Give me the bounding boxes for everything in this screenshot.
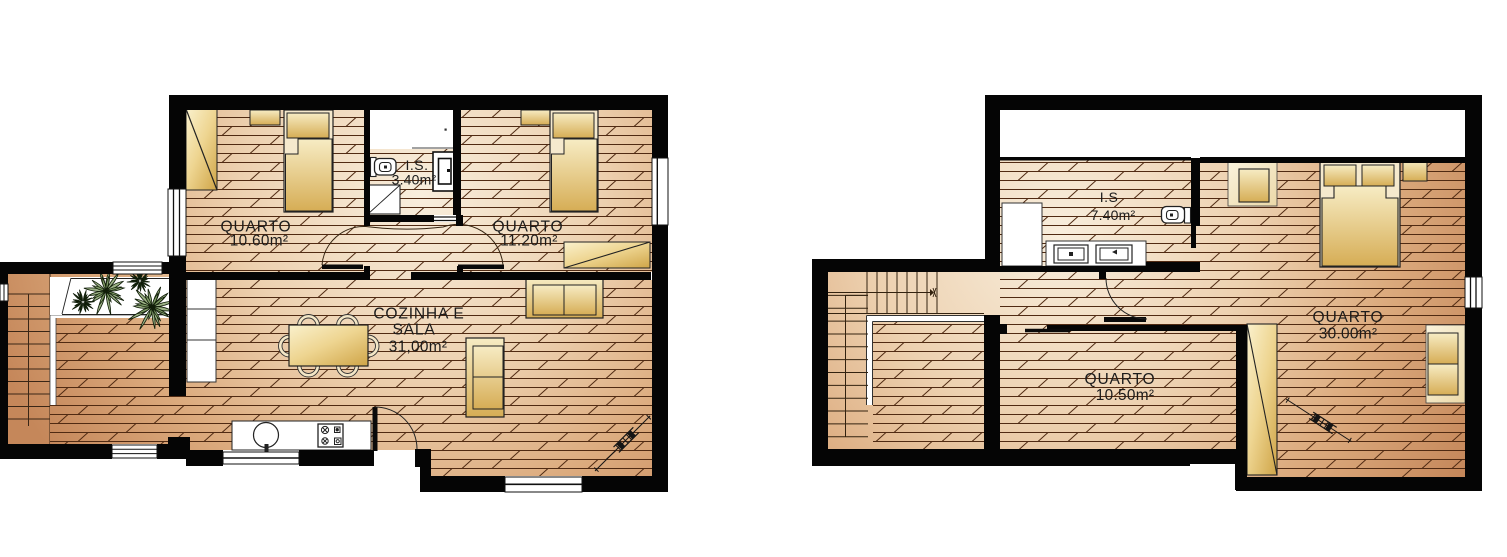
svg-text:QUARTO: QUARTO bbox=[1313, 309, 1384, 326]
svg-text:7.40m²: 7.40m² bbox=[1091, 207, 1136, 223]
svg-text:QUARTO: QUARTO bbox=[1085, 371, 1156, 388]
svg-text:10.60m²: 10.60m² bbox=[230, 233, 289, 250]
svg-text:10.50m²: 10.50m² bbox=[1096, 387, 1155, 404]
svg-text:COZINHA E: COZINHA E bbox=[373, 306, 464, 323]
svg-text:3.40m²: 3.40m² bbox=[392, 172, 437, 188]
svg-text:31,00m²: 31,00m² bbox=[389, 339, 448, 356]
svg-text:30.00m²: 30.00m² bbox=[1319, 326, 1378, 343]
svg-text:SALA: SALA bbox=[392, 322, 435, 339]
svg-text:I.S: I.S bbox=[1100, 189, 1119, 205]
svg-text:11.20m²: 11.20m² bbox=[500, 233, 557, 250]
